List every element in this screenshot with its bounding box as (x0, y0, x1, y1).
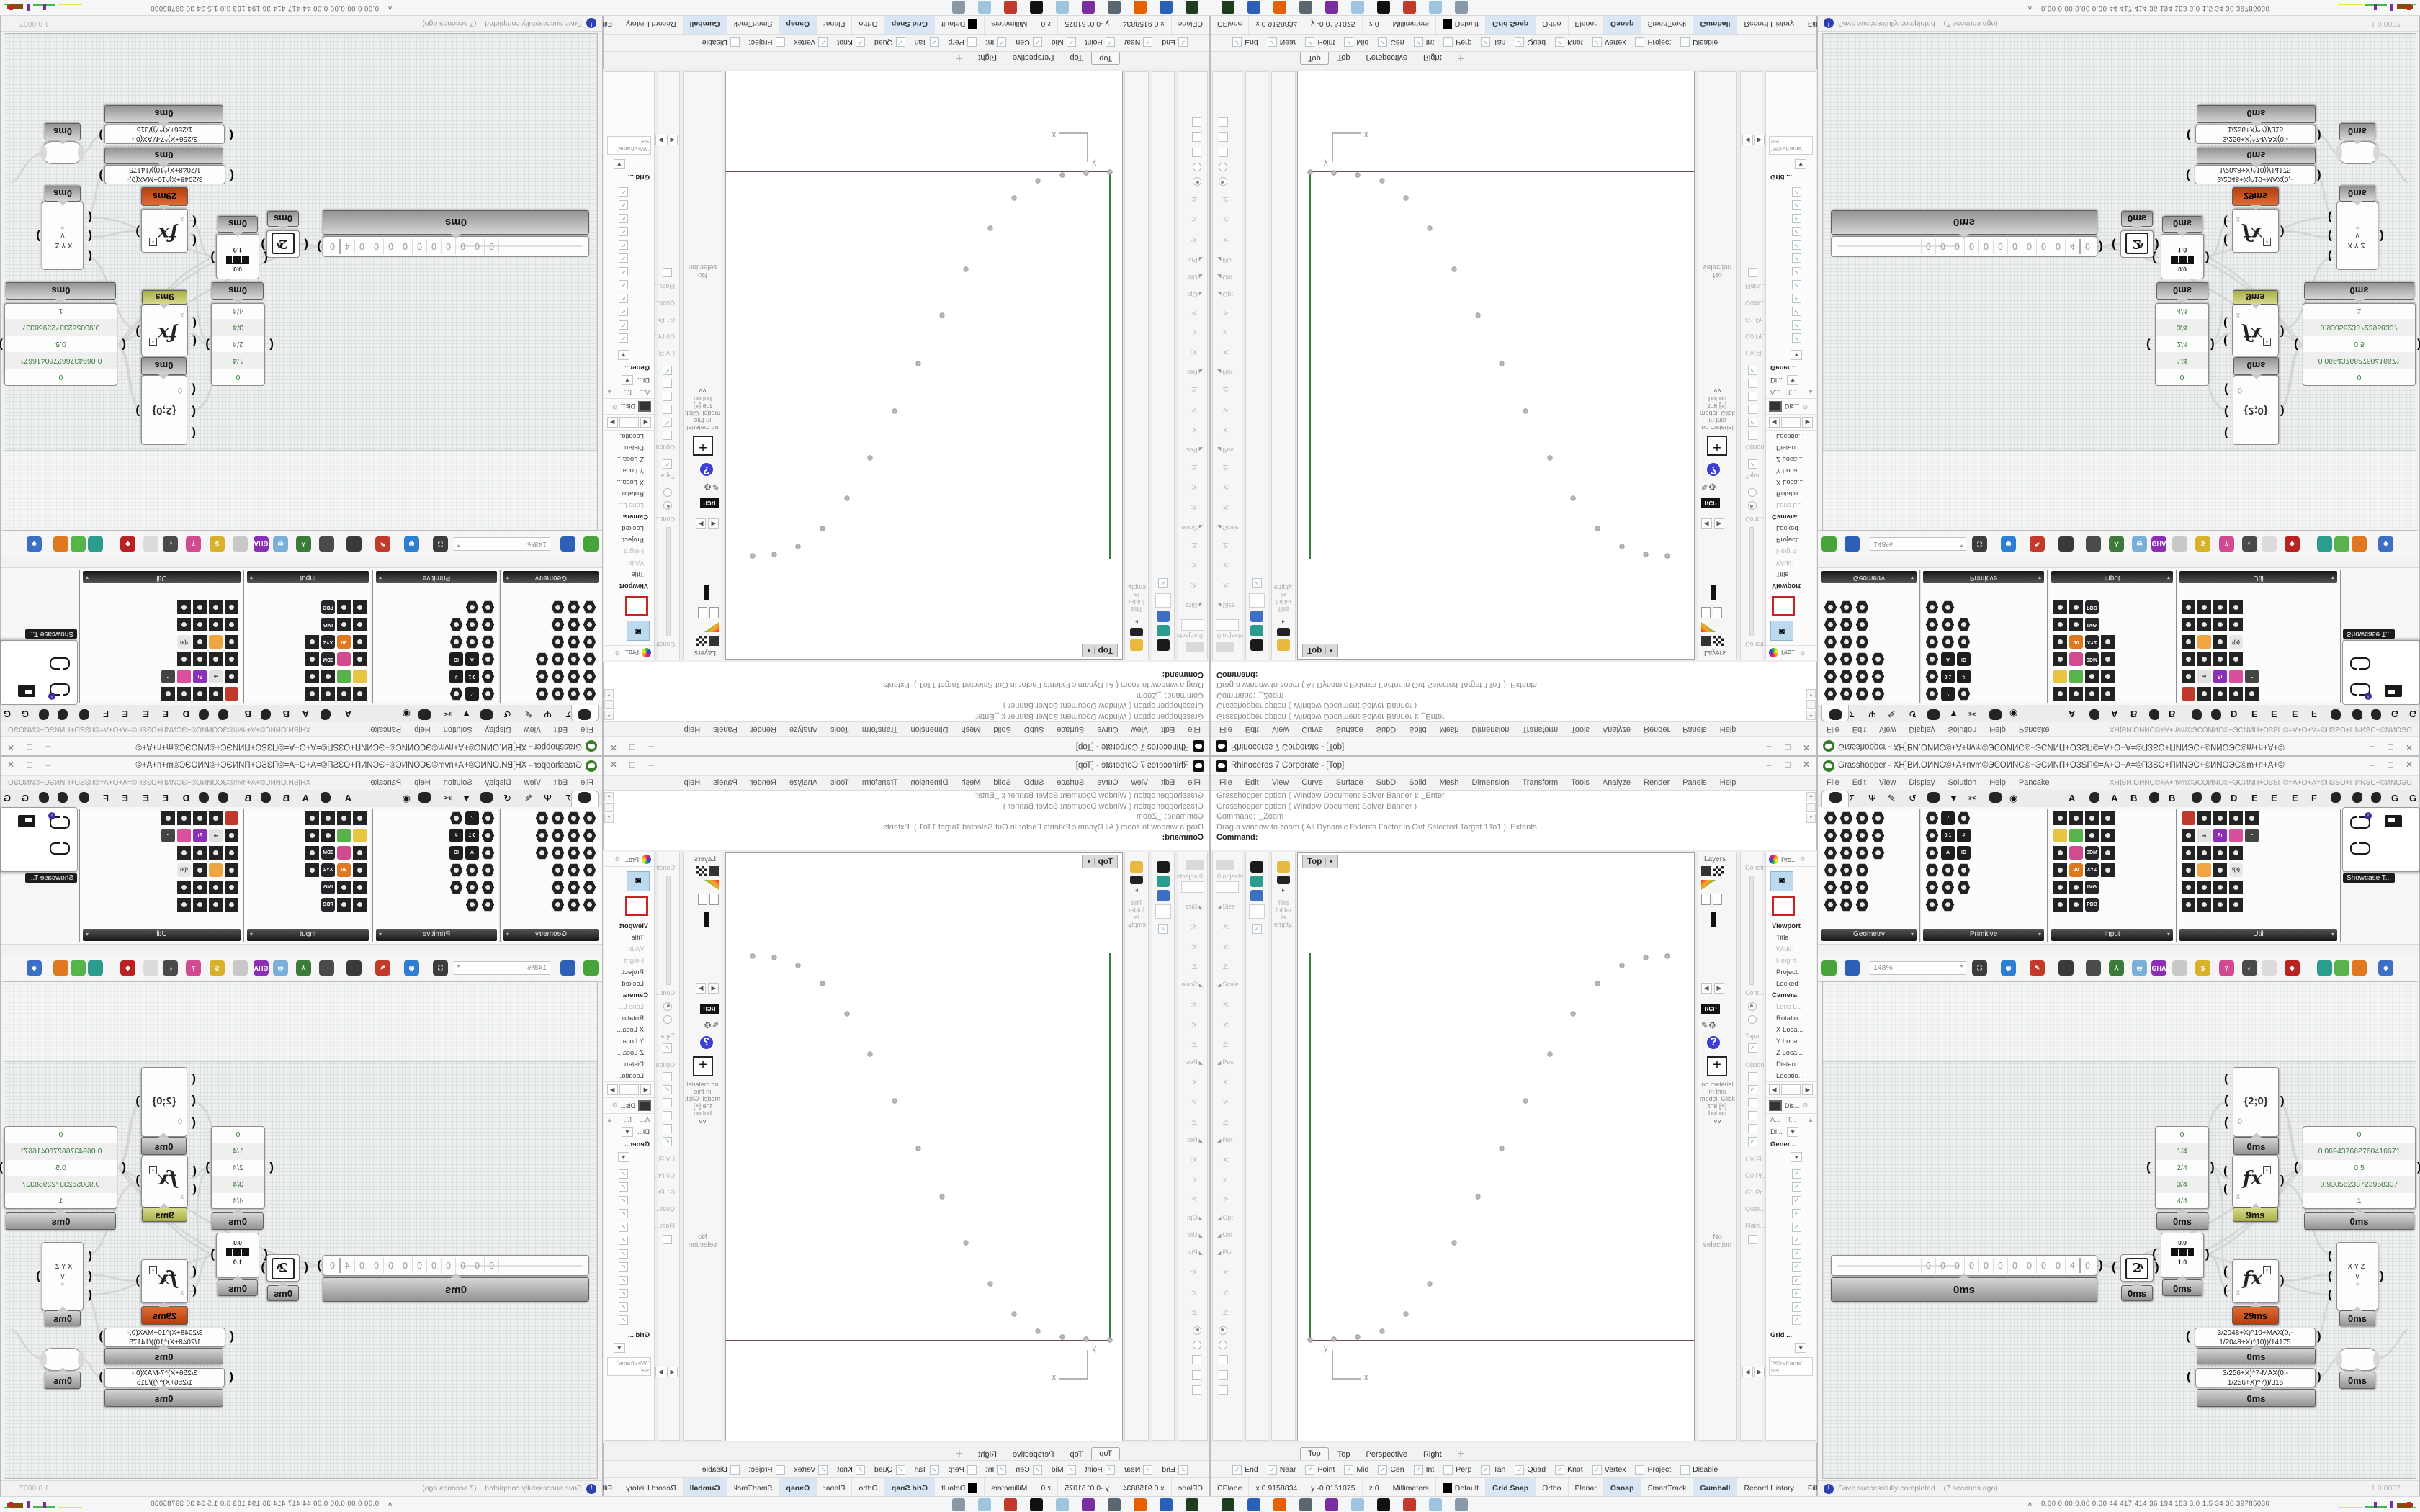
component-icon[interactable] (1925, 898, 1939, 912)
checkbox-on[interactable]: ✓ (1748, 418, 1757, 427)
slider-digit[interactable]: 0 (326, 1258, 341, 1273)
gh-toolbar-icon-8[interactable]: ◎ (2132, 960, 2147, 976)
color-gradient-icon[interactable] (1701, 622, 1716, 632)
rhino-command-scrollbar[interactable]: ▲▼ (1806, 662, 1815, 720)
component-icon[interactable] (2053, 600, 2067, 614)
close-icon[interactable]: ✕ (5, 760, 17, 770)
dropdown-icon[interactable]: ▼ (614, 1343, 625, 1353)
component-icon[interactable] (225, 670, 238, 683)
component-icon[interactable] (551, 687, 565, 701)
gh-toolbar-icon-5[interactable] (2058, 536, 2074, 552)
slider-digit[interactable]: 0 (384, 1258, 398, 1273)
taskbar-app-icon-3[interactable] (1299, 1498, 1312, 1511)
dome-icon[interactable] (1250, 876, 1263, 887)
help-icon[interactable]: ? (1707, 463, 1720, 476)
input-port-bracket[interactable]: ( (2224, 1116, 2228, 1128)
presentation-easel-icon[interactable] (2385, 685, 2402, 697)
gh-plugin-tab-icon-13[interactable] (2331, 709, 2341, 720)
component-icon[interactable] (2101, 687, 2115, 701)
new-viewport-icon[interactable]: ✛ (1451, 1448, 1471, 1460)
checkbox-on[interactable]: ✓ (856, 38, 865, 48)
checkbox-on[interactable]: ✓ (1143, 38, 1152, 48)
radio-off[interactable] (663, 488, 672, 497)
display-checkbox-on[interactable]: ✓ (619, 228, 628, 237)
menu-item-solid[interactable]: Solid (993, 725, 1010, 734)
model-point[interactable] (1036, 1329, 1040, 1333)
component-icon[interactable] (353, 635, 367, 649)
component-icon[interactable] (1824, 898, 1837, 912)
tray-chevron-icon[interactable]: ᴧ (388, 1500, 392, 1508)
component-icon[interactable] (2069, 846, 2083, 860)
gh-toolbar-icon-12[interactable]: ? (2219, 960, 2234, 976)
boxedit-checkbox[interactable] (1192, 132, 1201, 142)
status-cell-osnap[interactable]: Osnap (779, 14, 816, 34)
gh-toolbar-icon-8[interactable]: ◎ (273, 536, 288, 552)
component-icon[interactable] (177, 898, 191, 912)
checkbox-off[interactable] (663, 379, 672, 388)
slider-digit[interactable]: 0 (2007, 239, 2022, 254)
component-icon[interactable] (1957, 635, 1971, 649)
component-icon[interactable] (1839, 829, 1853, 842)
gh-tab-icon-5[interactable] (1927, 792, 1940, 803)
component-icon[interactable] (583, 846, 596, 860)
gh-tab-icon-7[interactable]: ✂ (1968, 793, 1976, 804)
help-icon[interactable]: ? (1707, 1036, 1720, 1049)
model-point[interactable] (1644, 552, 1648, 557)
vertical-track[interactable] (1749, 876, 1754, 985)
component-icon[interactable] (2182, 600, 2195, 614)
component-icon[interactable] (1925, 635, 1939, 649)
checkbox-on[interactable]: ✓ (1748, 460, 1757, 469)
gh-toolbar-icon-11[interactable]: $ (210, 960, 225, 976)
status-cell-planar[interactable]: Planar (816, 14, 851, 34)
slider-digit[interactable]: 0 (1993, 239, 2007, 254)
gh-wire[interactable] (88, 231, 138, 238)
status-cell-millimeters[interactable]: Millimeters (1386, 14, 1436, 34)
nav-left-icon[interactable]: ◀ (667, 1367, 678, 1377)
checkbox-on[interactable]: ✓ (663, 366, 672, 375)
display-checkbox-on[interactable]: ✓ (619, 1315, 628, 1325)
model-point[interactable] (1523, 409, 1528, 413)
component-icon[interactable] (1839, 898, 1853, 912)
component-icon[interactable]: ID (1957, 846, 1971, 860)
slider-digit[interactable]: 0 (2079, 1258, 2094, 1273)
output-port-bracket[interactable]: ) (99, 130, 103, 142)
panel-grip[interactable] (1181, 854, 1204, 858)
properties-tab[interactable]: Pro...⚙ (1766, 645, 1816, 660)
gh-toolbar-icon-3[interactable]: ◉ (404, 960, 419, 976)
component-icon[interactable] (337, 846, 351, 860)
chevron-down-icon[interactable]: ▼ (456, 543, 461, 548)
gh-plugin-tab-A-2[interactable]: A (302, 793, 309, 804)
new-viewport-icon[interactable]: ✛ (1451, 52, 1471, 64)
osnap-toggle-perp[interactable]: Perp (949, 38, 977, 48)
nav-left-icon[interactable]: ◀ (708, 983, 719, 994)
nav-right-icon[interactable]: ▶ (1754, 1367, 1765, 1377)
component-icon[interactable] (567, 881, 581, 894)
dropdown-icon[interactable]: ▼ (618, 350, 629, 360)
gh-toolbar-icon-11[interactable]: $ (2195, 536, 2210, 552)
component-icon[interactable] (177, 846, 191, 860)
component-icon[interactable]: f(x) (177, 635, 191, 649)
viewport-tab-perspective-2[interactable]: Perspective (1359, 1449, 1415, 1460)
menu-item-file[interactable]: File (1188, 725, 1201, 734)
gh-toolbar-icon-14[interactable] (2262, 960, 2277, 976)
gh-toolbar-icon-17[interactable] (2334, 536, 2349, 552)
checkbox-on[interactable]: ✓ (1305, 1465, 1314, 1475)
nav-left-icon[interactable]: ◀ (667, 135, 678, 145)
hamburger-icon[interactable] (1130, 628, 1143, 636)
status-cell-default[interactable]: Default (1436, 14, 1486, 34)
rhino-viewport[interactable]: Top▼yx (1297, 852, 1695, 1441)
gh-toolbar-icon-2[interactable]: ⛶ (433, 536, 448, 552)
add-material-button[interactable]: + (693, 1056, 713, 1076)
menu-item-panels[interactable]: Panels (1682, 725, 1707, 734)
model-point[interactable] (1665, 954, 1670, 958)
component-icon[interactable] (1855, 670, 1869, 683)
status-cell-cplane[interactable]: CPlane (1211, 14, 1249, 34)
dropdown-icon[interactable]: ▼ (622, 375, 633, 385)
rhino-command-area[interactable]: Grasshopper option ( Window Document Sol… (604, 790, 1209, 852)
gh-menu-item-view[interactable]: View (1879, 778, 1896, 787)
gh-plugin-tab-G-17[interactable]: G (2409, 708, 2416, 719)
gh-plugin-tab-B-3[interactable]: B (2130, 708, 2137, 719)
rhino-command-prompt[interactable]: Command: (1211, 670, 1816, 680)
status-cell-smarttrack[interactable]: SmartTrack (1641, 14, 1694, 34)
maximize-icon[interactable]: □ (1782, 760, 1793, 770)
gh-canvas[interactable]: (((){2;0}00ms()01/42/43/44/40ms()00.0694… (4, 33, 598, 531)
model-point[interactable] (1548, 456, 1552, 460)
osnap-toggle-perp[interactable]: Perp (1443, 38, 1471, 48)
component-icon[interactable] (2101, 846, 2115, 860)
panel-grip[interactable] (1181, 654, 1204, 658)
checkbox-off[interactable] (663, 405, 672, 414)
slider-digit[interactable]: 0 (355, 1258, 369, 1273)
boxedit-dropdown[interactable] (1181, 881, 1204, 893)
display-checkbox-on[interactable]: ✓ (619, 1289, 628, 1298)
minimize-icon[interactable]: – (1763, 760, 1775, 770)
output-port-bracket[interactable]: ) (210, 1248, 215, 1260)
gh-toolbar-icon-19[interactable]: ◆ (2378, 960, 2393, 976)
component-icon[interactable] (567, 635, 581, 649)
gh-menu-item-display[interactable]: Display (1909, 778, 1935, 787)
status-cell-cplane[interactable]: CPlane (1211, 1478, 1249, 1498)
checkbox-on[interactable]: ✓ (1344, 1465, 1353, 1475)
osnap-toggle-perp[interactable]: Perp (1443, 1465, 1471, 1475)
gh-zoom-combo[interactable]: 148%▼ (454, 537, 550, 551)
input-port-bracket[interactable]: ( (88, 1288, 92, 1300)
nav-right-icon[interactable]: ▶ (655, 135, 666, 145)
boxedit-checkbox[interactable] (1219, 117, 1228, 127)
palette-group-label[interactable]: Primitive (376, 571, 497, 583)
taskbar-app-icon-0[interactable] (1222, 1498, 1234, 1511)
fx-component[interactable]: fx◦x (141, 1259, 188, 1303)
component-icon[interactable] (567, 652, 581, 666)
display-checkbox-on[interactable]: ✓ (1792, 281, 1801, 290)
minimize-icon[interactable]: – (42, 760, 54, 770)
slider-digit[interactable]: 0 (355, 239, 369, 254)
slider-digit[interactable]: 0 (1964, 1258, 1978, 1273)
vertical-track[interactable] (667, 876, 671, 985)
gh-menu-item-help[interactable]: Help (1989, 778, 2006, 787)
menu-item-file[interactable]: File (1188, 778, 1201, 787)
component-icon[interactable] (2213, 600, 2227, 614)
viewport-tab-perspective-2[interactable]: Perspective (1359, 52, 1415, 63)
osnap-toggle-perp[interactable]: Perp (949, 1465, 977, 1475)
palette-group-label[interactable]: Geometry (503, 571, 599, 583)
input-port-bracket[interactable]: ( (2112, 239, 2116, 251)
checkbox-off[interactable] (1748, 1111, 1757, 1120)
gh-plugin-tab-E-9[interactable]: E (162, 793, 169, 804)
monitor-icon[interactable] (1157, 890, 1170, 901)
status-cell-ortho[interactable]: Ortho (1536, 14, 1568, 34)
checkbox-off[interactable] (663, 268, 672, 277)
checkbox-off[interactable] (663, 1235, 672, 1244)
component-icon[interactable] (481, 811, 495, 825)
component-icon[interactable] (449, 881, 463, 894)
rhino-command-prompt[interactable]: Command: (604, 670, 1209, 680)
component-icon[interactable]: 20 (2069, 635, 2083, 649)
display-checkbox-on[interactable]: ✓ (619, 294, 628, 303)
model-point[interactable] (772, 955, 776, 960)
menu-item-panels[interactable]: Panels (713, 725, 738, 734)
menu-item-solid[interactable]: Solid (1409, 725, 1426, 734)
component-icon[interactable] (177, 687, 191, 701)
taskbar-app-icon-0[interactable] (1222, 1, 1234, 14)
gh-plugin-tab-icon-15[interactable] (39, 709, 49, 720)
menu-item-view[interactable]: View (1131, 778, 1149, 787)
slider-digit[interactable]: 0 (398, 1258, 413, 1273)
menu-item-analyze[interactable]: Analyze (789, 725, 817, 734)
component-icon[interactable] (481, 898, 495, 912)
component-icon[interactable] (1925, 670, 1939, 683)
component-icon[interactable] (337, 829, 351, 842)
menu-item-panels[interactable]: Panels (713, 778, 738, 787)
gh-wire[interactable] (2318, 135, 2336, 153)
gh-toolbar-icon-7[interactable]: ⅄ (2109, 960, 2124, 976)
input-port-bracket[interactable]: ( (192, 1116, 196, 1128)
component-icon[interactable] (2085, 829, 2099, 842)
component-icon[interactable] (449, 811, 463, 825)
checkbox-on[interactable]: ✓ (1268, 38, 1277, 48)
gh-menu-item-edit[interactable]: Edit (1852, 778, 1866, 787)
gh-toolbar-icon-12[interactable]: ? (186, 536, 201, 552)
gh-wire[interactable] (194, 1102, 211, 1126)
input-port-bracket[interactable]: ( (304, 239, 308, 251)
viewport-tab-right-3[interactable]: Right (1416, 52, 1449, 63)
output-port-bracket[interactable]: ) (135, 326, 140, 338)
checkbox-off[interactable] (1748, 379, 1757, 388)
dropdown-icon[interactable]: ▼ (1787, 375, 1798, 385)
component-icon[interactable]: IMG (321, 618, 335, 631)
component-icon[interactable] (2197, 846, 2211, 860)
status-cell-smarttrack[interactable]: SmartTrack (727, 1478, 779, 1498)
gh-plugin-tab-A-2[interactable]: A (2111, 708, 2117, 719)
checkbox-on[interactable]: ✓ (663, 1085, 672, 1094)
color-gradient-icon[interactable] (704, 880, 719, 890)
component-icon[interactable] (481, 600, 495, 614)
display-checkbox-on[interactable]: ✓ (1792, 307, 1801, 317)
menu-item-mesh[interactable]: Mesh (1440, 725, 1459, 734)
scroll-right-icon[interactable]: ▶ (1802, 1084, 1813, 1095)
dropdown-icon[interactable]: ▼ (1787, 1127, 1798, 1137)
chevron-down-icon[interactable]: ▼ (1959, 964, 1964, 969)
output-port-bracket[interactable]: ) (2380, 230, 2384, 243)
component-icon[interactable] (1855, 881, 1869, 894)
gh-menu-item-display[interactable]: Display (485, 778, 511, 787)
gh-canvas[interactable]: (((){2;0}00ms()01/42/43/44/40ms()00.0694… (1822, 981, 2416, 1479)
checkbox-on[interactable]: ✓ (930, 38, 939, 48)
gh-tab-icon-1[interactable]: Σ (565, 708, 571, 719)
slider-digit[interactable]: 0 (1978, 1258, 1993, 1273)
gh-canvas[interactable]: (((){2;0}00ms()01/42/43/44/40ms()00.0694… (4, 981, 598, 1479)
component-icon[interactable] (551, 898, 565, 912)
output-port-bracket[interactable]: ) (2417, 339, 2420, 351)
gh-plugin-tab-B-5[interactable]: B (2169, 708, 2175, 719)
gh-wire[interactable] (2377, 153, 2407, 182)
gh-plugin-tab-E-10[interactable]: E (2271, 793, 2277, 804)
gh-toolbar-icon-13[interactable]: ◐ (163, 960, 178, 976)
component-icon[interactable]: 3DM (321, 846, 335, 860)
status-cell-y00161075[interactable]: y -0.0161075 (1057, 14, 1115, 34)
output-port-bracket[interactable]: ) (2280, 326, 2285, 338)
component-icon[interactable] (2229, 618, 2243, 631)
component-icon[interactable] (551, 863, 565, 877)
nav-right-icon[interactable]: ▶ (696, 983, 707, 994)
gh-plugin-tab-G-16[interactable]: G (22, 708, 29, 719)
component-icon[interactable] (567, 600, 581, 614)
close-icon[interactable]: ✕ (5, 742, 17, 752)
color-gradient-icon[interactable] (1701, 880, 1716, 890)
component-icon[interactable] (583, 600, 596, 614)
status-cell-gridsnap[interactable]: Grid Snap (1486, 14, 1536, 34)
component-icon[interactable] (535, 687, 549, 701)
model-point[interactable] (1620, 544, 1624, 549)
model-point[interactable] (1308, 170, 1312, 174)
component-icon[interactable] (353, 846, 367, 860)
model-point[interactable] (1332, 1337, 1336, 1341)
taskbar-app-icon-1[interactable] (1247, 1498, 1260, 1511)
osnap-toggle-disable[interactable]: Disable (1680, 38, 1718, 48)
output-port-bracket[interactable]: ) (0, 1161, 3, 1173)
status-cell-gumball[interactable]: Gumball (1693, 1478, 1737, 1498)
slider-digit[interactable]: 0 (326, 239, 341, 254)
taskbar-app-icon-2[interactable] (1273, 1498, 1286, 1511)
hamburger-icon[interactable] (1277, 628, 1290, 636)
component-icon[interactable] (1824, 863, 1837, 877)
toolbar-checkbox[interactable]: ✓ (1252, 924, 1262, 934)
status-cell-recordhistory[interactable]: Record History (1737, 1478, 1801, 1498)
component-icon[interactable] (225, 881, 238, 894)
menu-item-help[interactable]: Help (1720, 725, 1736, 734)
component-icon[interactable]: XYZ (321, 635, 335, 649)
rows-component[interactable]: 01/42/43/44/4 (211, 303, 265, 386)
osnap-toggle-point[interactable]: ✓Point (1085, 1465, 1115, 1475)
output-port-bracket[interactable]: ) (2099, 1259, 2103, 1271)
slider-digit[interactable]: 0 (456, 239, 470, 254)
component-icon[interactable] (2213, 863, 2227, 877)
component-icon[interactable] (1957, 863, 1971, 877)
checkbox-off[interactable] (1443, 38, 1453, 48)
component-icon[interactable] (2197, 600, 2211, 614)
gh-menu-item-display[interactable]: Display (1909, 725, 1935, 734)
component-icon[interactable] (583, 829, 596, 842)
scroll-left-icon[interactable]: ◀ (1769, 417, 1780, 428)
checkbox-on[interactable]: ✓ (1515, 38, 1524, 48)
gh-document-selector[interactable]: ХН]ВИ.ОИNС©+А+пvm©ЭСОИNС©+ЭСИNП+ОЗЅП©=А+… (8, 725, 310, 733)
checker-icon[interactable] (696, 636, 707, 646)
model-point[interactable] (1500, 1146, 1504, 1151)
status-cell-osnap[interactable]: Osnap (779, 1478, 816, 1498)
checkbox-off[interactable] (1748, 1124, 1757, 1133)
osnap-toggle-near[interactable]: ✓Near (1268, 38, 1296, 48)
status-cell-ortho[interactable]: Ortho (852, 14, 884, 34)
component-icon[interactable]: f(x) (177, 863, 191, 877)
gh-plugin-tab-G-17[interactable]: G (2409, 793, 2416, 804)
component-icon[interactable] (1941, 898, 1955, 912)
palette-group-label[interactable]: Primitive (376, 929, 497, 941)
gh-menu-item-view[interactable]: View (524, 778, 542, 787)
taskbar-app-icon-3[interactable] (1108, 1, 1121, 14)
gh-toolbar-icon-4[interactable]: ✎ (375, 536, 390, 552)
slider-digit-cells[interactable]: 000000000040 (1921, 239, 2094, 254)
component-icon[interactable] (2053, 829, 2067, 842)
rhino-command-area[interactable]: Grasshopper option ( Window Document Sol… (604, 660, 1209, 722)
gh-plugin-tab-G-17[interactable]: G (4, 708, 11, 719)
presentation-easel-icon[interactable] (18, 815, 35, 827)
status-cell-gumball[interactable]: Gumball (683, 14, 727, 34)
component-icon[interactable]: IMG (321, 881, 335, 894)
color-gradient-icon[interactable] (704, 622, 719, 632)
input-port-bracket[interactable]: ( (192, 1072, 196, 1084)
output-port-bracket[interactable]: ) (2155, 1261, 2159, 1273)
taskbar-app-icon-8[interactable] (1429, 1, 1442, 14)
status-cell-cplane[interactable]: CPlane (1171, 1478, 1209, 1498)
component-icon[interactable] (1957, 618, 1971, 631)
checkbox-off[interactable] (967, 1465, 977, 1475)
output-port-bracket[interactable]: ) (317, 241, 321, 253)
gh-plugin-tab-icon-7[interactable] (2211, 709, 2221, 720)
gh-menu-item-solution[interactable]: Solution (1948, 725, 1976, 734)
component-icon[interactable] (1957, 881, 1971, 894)
input-port-bracket[interactable]: ( (269, 339, 274, 351)
taskbar-app-icon-9[interactable] (1455, 1498, 1468, 1511)
gh-tab-icon-8[interactable] (418, 792, 431, 803)
checkbox-off[interactable] (730, 38, 740, 48)
display-checkbox-on[interactable]: ✓ (619, 1209, 628, 1218)
pen-gear-icon[interactable]: ✎⚙ (1701, 1020, 1734, 1030)
component-icon[interactable]: Pr (2213, 670, 2227, 683)
palette-group-label[interactable]: Util (83, 929, 241, 941)
gh-wire[interactable] (13, 1330, 43, 1359)
input-port-bracket[interactable]: ( (2328, 251, 2332, 263)
taskbar-app-icon-6[interactable] (1030, 1, 1043, 14)
component-icon[interactable]: # (1957, 670, 1971, 683)
component-icon[interactable] (2213, 881, 2227, 894)
rcp-tab-icon[interactable]: RCP (1701, 498, 1720, 508)
scroll-thumb[interactable] (619, 1084, 640, 1095)
page-copy-icon[interactable] (698, 607, 707, 618)
checkbox-on[interactable]: ✓ (997, 38, 1006, 48)
component-icon[interactable] (305, 846, 319, 860)
component-icon[interactable] (177, 881, 191, 894)
component-icon[interactable] (225, 898, 238, 912)
checkbox-off[interactable] (776, 38, 785, 48)
viewport-tab-top-1[interactable]: Top (1330, 52, 1358, 63)
gh-zoom-combo[interactable]: 148%▼ (454, 961, 550, 975)
component-icon[interactable] (583, 811, 596, 825)
gh-toolbar-icon-12[interactable]: ? (186, 960, 201, 976)
